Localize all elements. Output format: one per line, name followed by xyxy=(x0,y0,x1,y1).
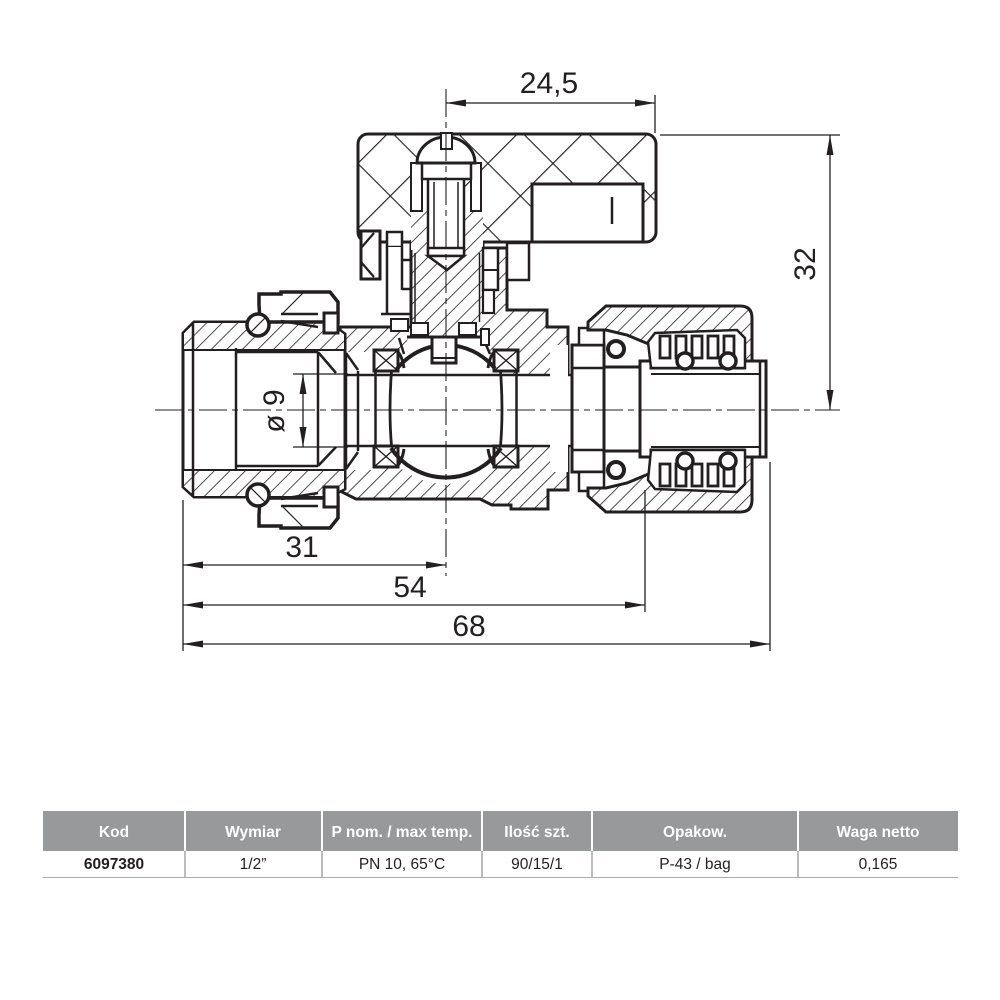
svg-text:PN 10, 65°C: PN 10, 65°C xyxy=(359,856,445,873)
svg-text:0,165: 0,165 xyxy=(859,856,898,873)
svg-text:Waga netto: Waga netto xyxy=(837,824,920,841)
svg-text:Wymiar: Wymiar xyxy=(225,824,281,841)
svg-text:6097380: 6097380 xyxy=(84,856,144,873)
svg-text:32: 32 xyxy=(789,247,822,280)
svg-text:P-43 / bag: P-43 / bag xyxy=(659,856,731,873)
svg-text:Opakow.: Opakow. xyxy=(663,824,727,841)
svg-text:ø 9: ø 9 xyxy=(258,389,291,432)
svg-text:68: 68 xyxy=(452,610,485,643)
svg-text:31: 31 xyxy=(285,531,318,564)
svg-text:24,5: 24,5 xyxy=(520,67,578,100)
svg-text:Ilość szt.: Ilość szt. xyxy=(504,824,569,841)
svg-text:90/15/1: 90/15/1 xyxy=(511,856,563,873)
svg-text:54: 54 xyxy=(393,571,426,604)
svg-text:1/2”: 1/2” xyxy=(240,856,267,873)
svg-text:Kod: Kod xyxy=(99,824,129,841)
svg-text:P nom. / max temp.: P nom. / max temp. xyxy=(332,824,473,841)
